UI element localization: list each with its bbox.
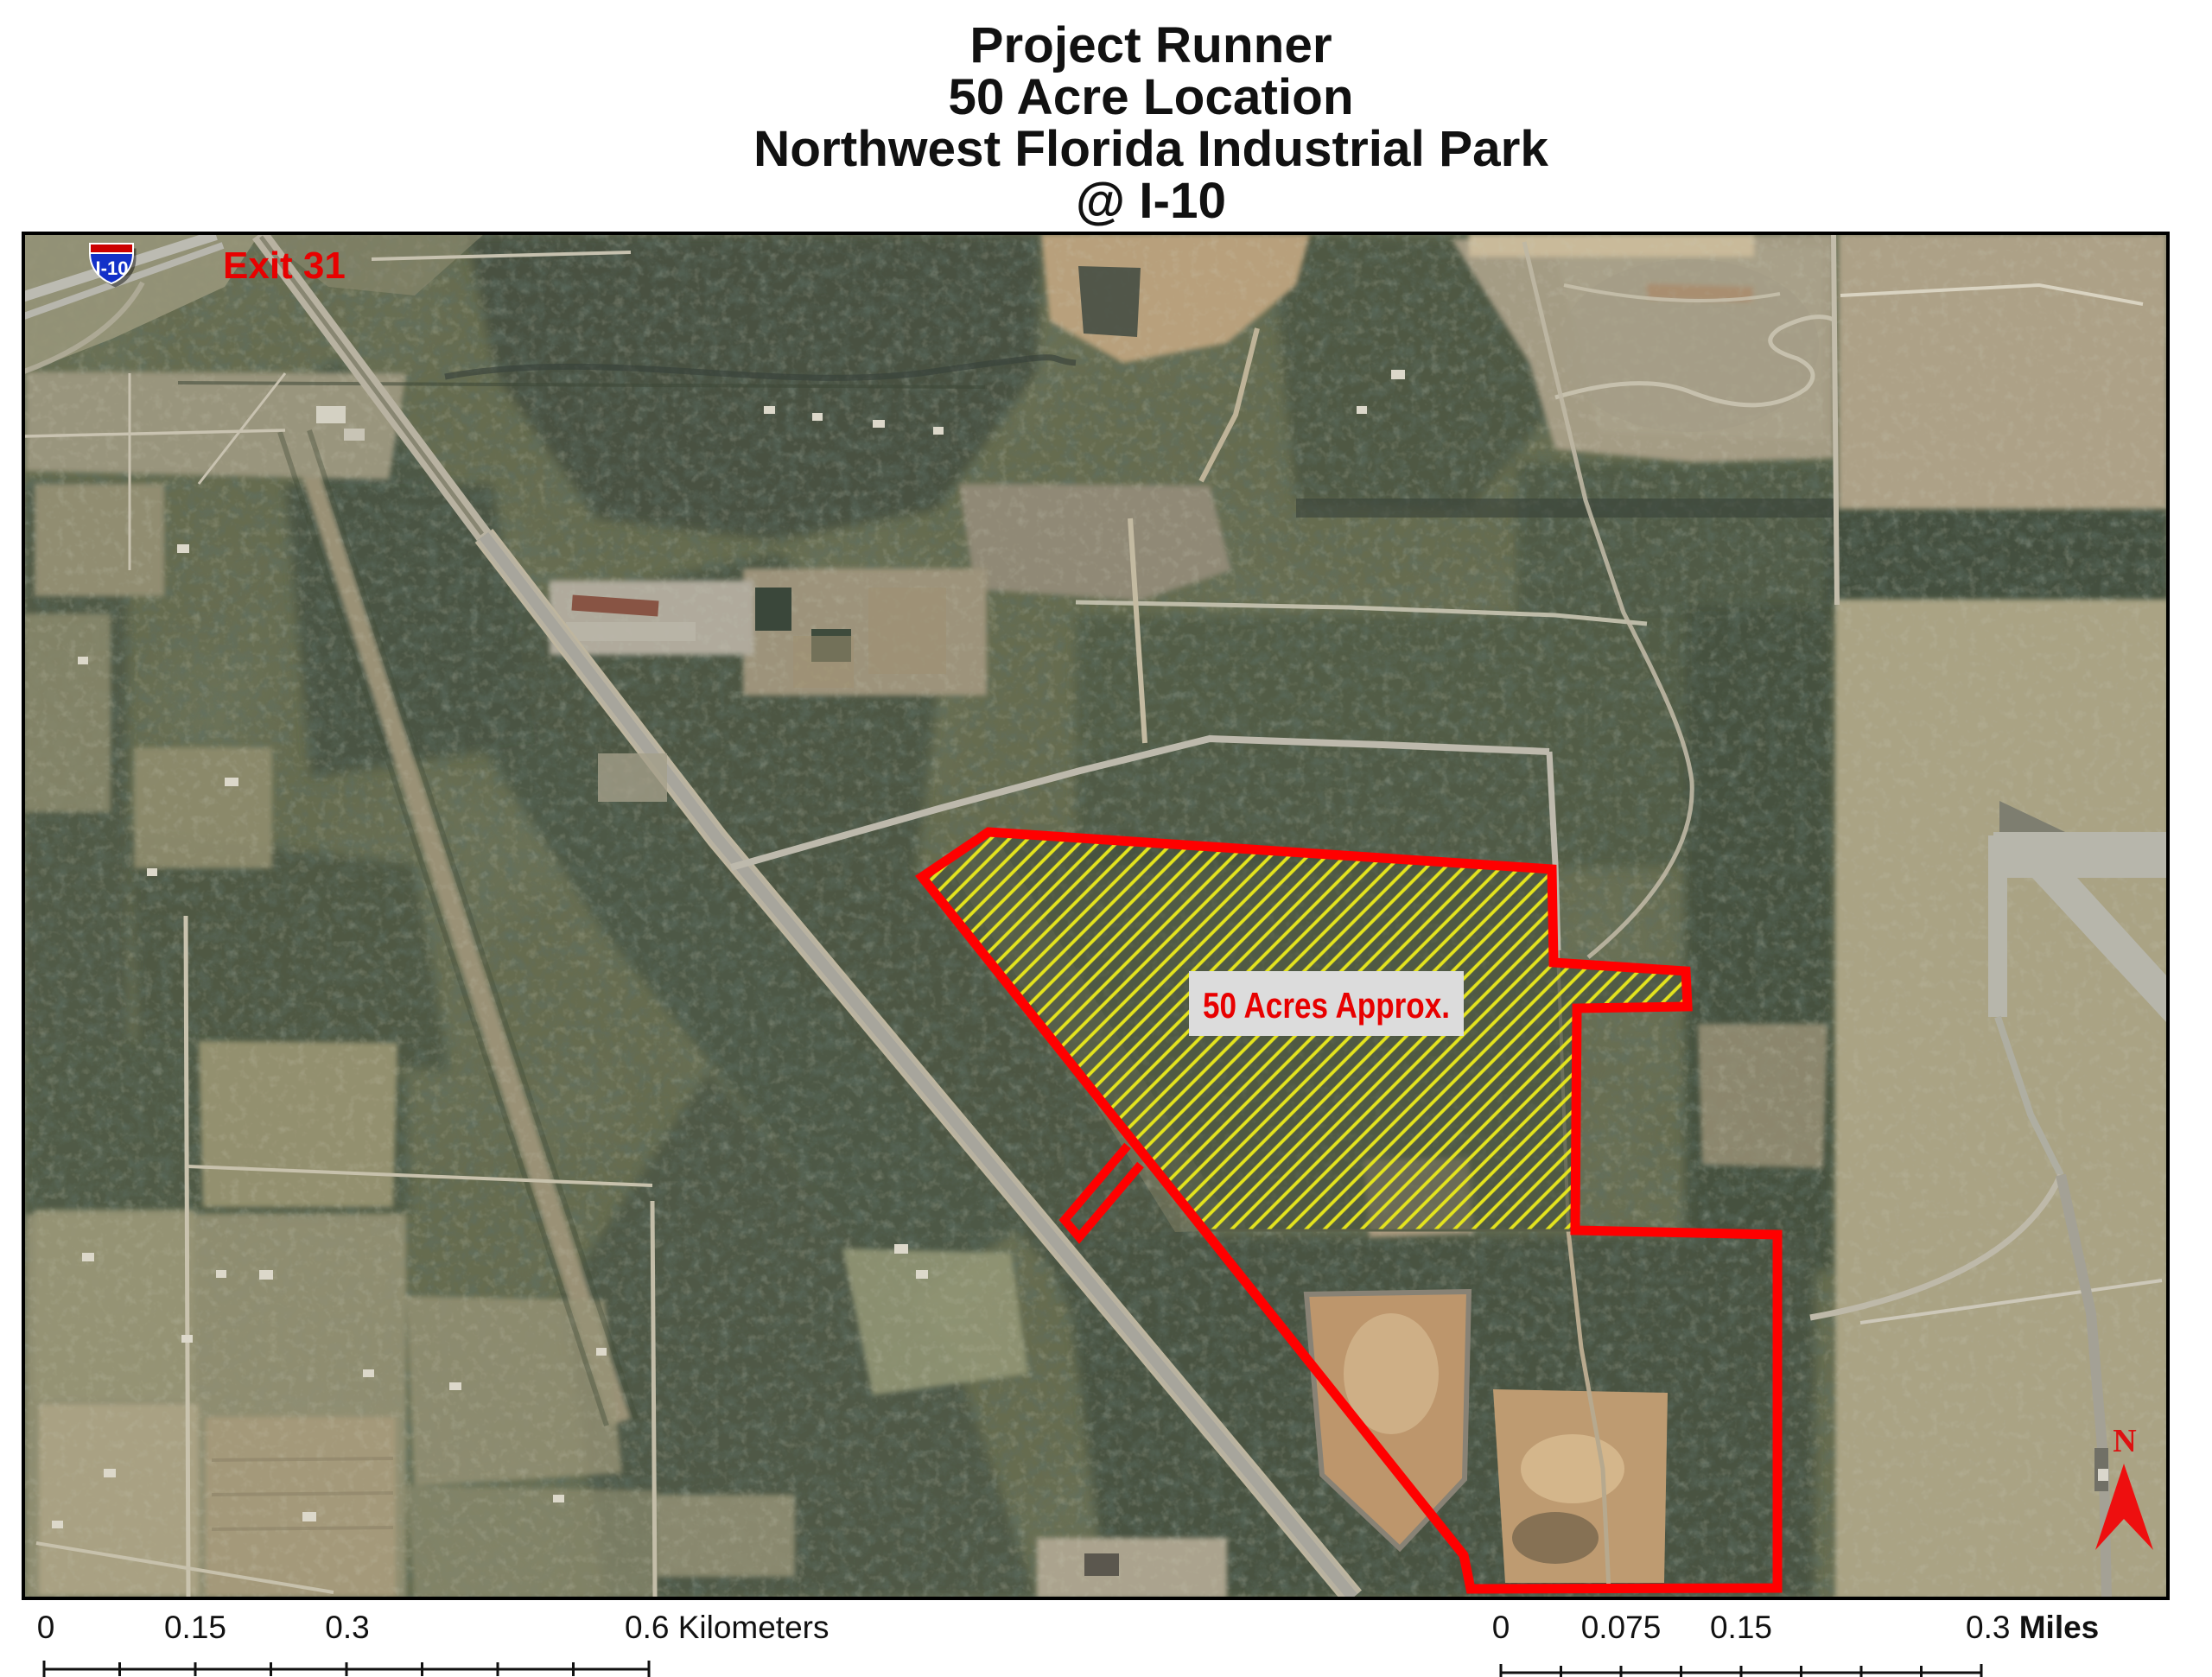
svg-text:@ I-10: @ I-10: [1076, 173, 1226, 229]
svg-text:0.6 Kilometers: 0.6 Kilometers: [625, 1610, 829, 1645]
svg-text:50 Acres Approx.: 50 Acres Approx.: [1203, 985, 1450, 1026]
svg-text:Exit 31: Exit 31: [223, 245, 346, 287]
svg-text:Project Runner: Project Runner: [969, 17, 1332, 73]
svg-text:0: 0: [37, 1610, 55, 1645]
svg-text:0.075: 0.075: [1581, 1610, 1662, 1645]
svg-text:50 Acre Location: 50 Acre Location: [948, 69, 1353, 125]
svg-text:0.3: 0.3: [325, 1610, 369, 1645]
svg-text:0.3 Miles: 0.3 Miles: [1966, 1610, 2099, 1645]
svg-text:0.15: 0.15: [164, 1610, 226, 1645]
svg-text:Northwest Florida Industrial P: Northwest Florida Industrial Park: [753, 121, 1548, 177]
svg-text:0: 0: [1492, 1610, 1510, 1645]
svg-text:I-10: I-10: [96, 257, 129, 279]
svg-text:0.15: 0.15: [1710, 1610, 1772, 1645]
svg-text:N: N: [2113, 1423, 2136, 1459]
